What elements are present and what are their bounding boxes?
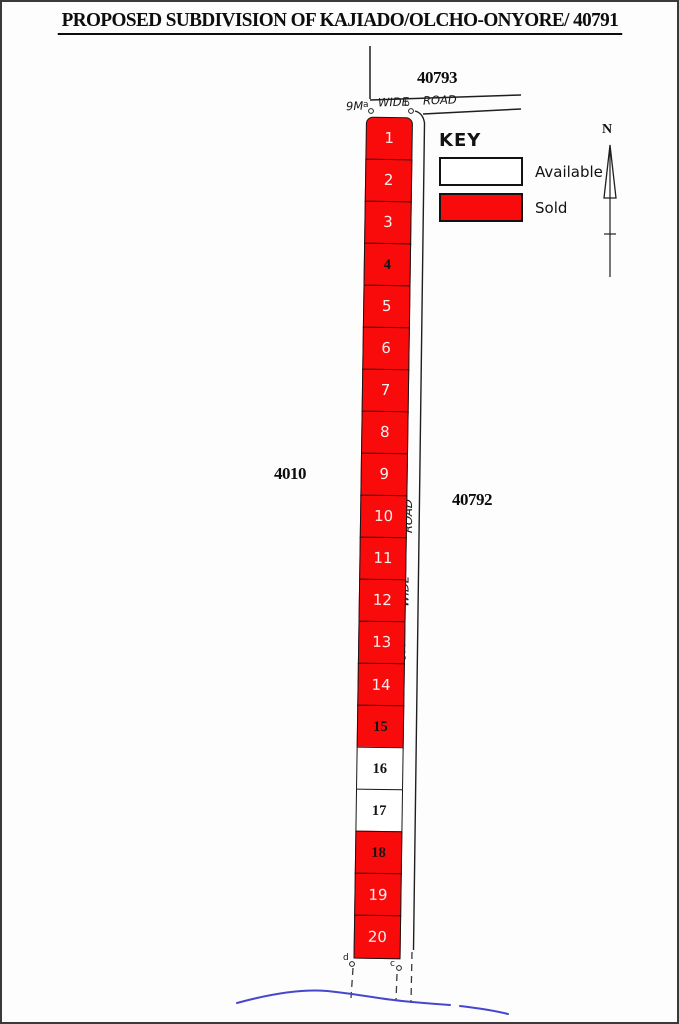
plot-number: 19 xyxy=(368,887,387,902)
plot-20: 20 xyxy=(354,915,402,959)
plot-number: 6 xyxy=(381,341,391,356)
parcel-label-north: 40793 xyxy=(417,68,457,88)
plot-number: 18 xyxy=(371,846,386,861)
plot-number: 15 xyxy=(373,720,388,735)
plot-18: 18 xyxy=(355,831,403,875)
north-arrow-label: N xyxy=(602,122,612,138)
subdivision-plan: PROPOSED SUBDIVISION OF KAJIADO/OLCHO-ON… xyxy=(0,0,679,1024)
plot-number: 17 xyxy=(372,804,387,819)
beacon-b-label: b xyxy=(404,99,410,109)
top-road-lower-edge xyxy=(423,109,521,114)
beacon-c-label: c xyxy=(390,959,395,969)
legend: KEY Available Sold xyxy=(439,130,603,229)
plot-number: 1 xyxy=(384,131,394,146)
plot-5: 5 xyxy=(363,285,411,329)
plot-14: 14 xyxy=(357,663,405,707)
plot-number: 5 xyxy=(382,299,392,314)
page-title: PROPOSED SUBDIVISION OF KAJIADO/OLCHO-ON… xyxy=(57,9,621,35)
beacon-a-label: a xyxy=(363,100,369,110)
north-arrow-icon xyxy=(604,145,616,198)
side-road-right-edge xyxy=(414,111,425,950)
legend-row-available: Available xyxy=(439,157,603,186)
plot-number: 3 xyxy=(383,215,393,230)
plot-number: 10 xyxy=(374,509,393,524)
plot-19: 19 xyxy=(354,873,402,917)
parcel-label-east: 40792 xyxy=(452,490,492,510)
plot-number: 8 xyxy=(380,425,390,440)
plot-7: 7 xyxy=(362,369,410,413)
beacon-a-icon xyxy=(369,109,374,114)
stream-line-segment xyxy=(460,1006,508,1014)
available-swatch xyxy=(439,157,523,186)
plot-15: 15 xyxy=(357,705,405,749)
plot-4: 4 xyxy=(363,243,411,287)
plot-number: 14 xyxy=(371,677,390,692)
plot-number: 4 xyxy=(384,258,391,273)
dashed-line-left xyxy=(351,968,353,998)
stream-line xyxy=(237,991,450,1005)
plot-number: 9 xyxy=(379,467,389,482)
top-road-road-label: ROAD xyxy=(423,92,457,107)
sold-label: Sold xyxy=(535,199,567,217)
legend-row-sold: Sold xyxy=(439,193,603,222)
plot-10: 10 xyxy=(360,495,408,539)
plot-strip: 1234567891011121314151617181920 xyxy=(354,117,413,960)
plot-number: 13 xyxy=(372,635,391,650)
plot-number: 7 xyxy=(381,383,391,398)
plot-17: 17 xyxy=(355,789,403,833)
plot-6: 6 xyxy=(362,327,410,371)
plot-number: 12 xyxy=(373,593,392,608)
beacon-b-icon xyxy=(409,109,414,114)
plot-8: 8 xyxy=(361,411,409,455)
plot-number: 20 xyxy=(368,929,387,944)
plot-number: 16 xyxy=(372,762,387,777)
plot-12: 12 xyxy=(358,579,406,623)
sold-swatch xyxy=(439,193,523,222)
parcel-label-west: 4010 xyxy=(274,464,306,484)
plot-13: 13 xyxy=(358,621,406,665)
beacon-d-icon xyxy=(350,962,355,967)
title-bar: PROPOSED SUBDIVISION OF KAJIADO/OLCHO-ON… xyxy=(2,9,677,35)
beacon-c-icon xyxy=(397,966,402,971)
plot-2: 2 xyxy=(365,159,413,203)
plot-16: 16 xyxy=(356,747,404,791)
available-label: Available xyxy=(535,163,603,181)
plot-11: 11 xyxy=(359,537,407,581)
dashed-line-right xyxy=(411,952,412,1003)
plot-number: 2 xyxy=(384,173,394,188)
top-road-width-label: 9M xyxy=(346,99,364,114)
plot-number: 11 xyxy=(373,551,392,566)
dashed-line-middle xyxy=(396,974,397,1001)
beacon-d-label: d xyxy=(343,953,349,963)
legend-title: KEY xyxy=(439,130,603,151)
plot-9: 9 xyxy=(360,453,408,497)
plot-1: 1 xyxy=(365,117,413,161)
plot-3: 3 xyxy=(364,201,412,245)
